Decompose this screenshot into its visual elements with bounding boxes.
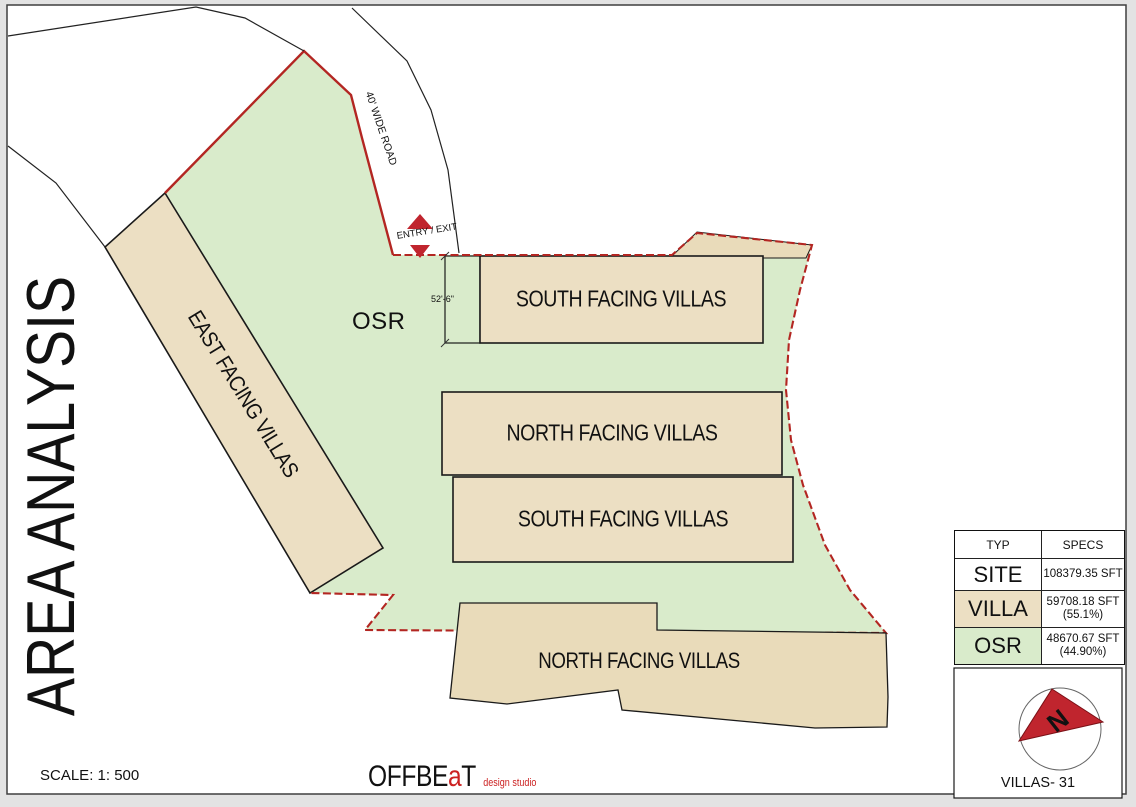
logo-tagline: design studio <box>483 777 536 789</box>
villa-specs-value: 59708.18 SFT <box>1047 596 1120 609</box>
osr-specs-pct: (44.90%) <box>1060 646 1107 659</box>
table-header-typ: TYP <box>955 531 1041 558</box>
studio-logo: OFFBEaTdesign studio <box>368 760 536 794</box>
block-label-north-facing-mid: NORTH FACING VILLAS <box>506 420 717 447</box>
logo-accent-letter: a <box>448 760 461 793</box>
table-row-site-specs: 108379.35 SFT <box>1042 559 1124 590</box>
table-row-villa-typ: VILLA <box>955 591 1041 627</box>
site-specs-value: 108379.35 SFT <box>1043 568 1122 581</box>
page-title: AREA ANALYSIS <box>12 276 90 716</box>
table-row-villa-specs: 59708.18 SFT (55.1%) <box>1042 591 1124 627</box>
logo-part-1: OFFBE <box>368 760 448 793</box>
table-row-osr-typ: OSR <box>955 628 1041 664</box>
osr-specs-value: 48670.67 SFT <box>1047 633 1120 646</box>
drawing-sheet: AREA ANALYSIS 40' WIDE ROAD ENTRY / EXIT… <box>0 0 1136 807</box>
compass-caption: VILLAS- 31 <box>954 775 1122 791</box>
block-label-south-facing-top: SOUTH FACING VILLAS <box>516 286 726 313</box>
logo-part-2: T <box>461 760 476 793</box>
block-label-north-facing-bottom: NORTH FACING VILLAS <box>538 648 739 674</box>
site-plan-svg <box>0 0 1136 807</box>
area-table: TYP SPECS SITE 108379.35 SFT VILLA 59708… <box>954 530 1125 665</box>
villa-specs-pct: (55.1%) <box>1063 609 1103 622</box>
table-header-specs: SPECS <box>1042 531 1124 558</box>
scale-label: SCALE: 1: 500 <box>40 767 139 784</box>
osr-label: OSR <box>352 308 406 336</box>
block-label-south-facing-mid: SOUTH FACING VILLAS <box>518 506 728 533</box>
table-row-osr-specs: 48670.67 SFT (44.90%) <box>1042 628 1124 664</box>
table-row-site-typ: SITE <box>955 559 1041 590</box>
dimension-label: 52'-6" <box>431 294 454 304</box>
